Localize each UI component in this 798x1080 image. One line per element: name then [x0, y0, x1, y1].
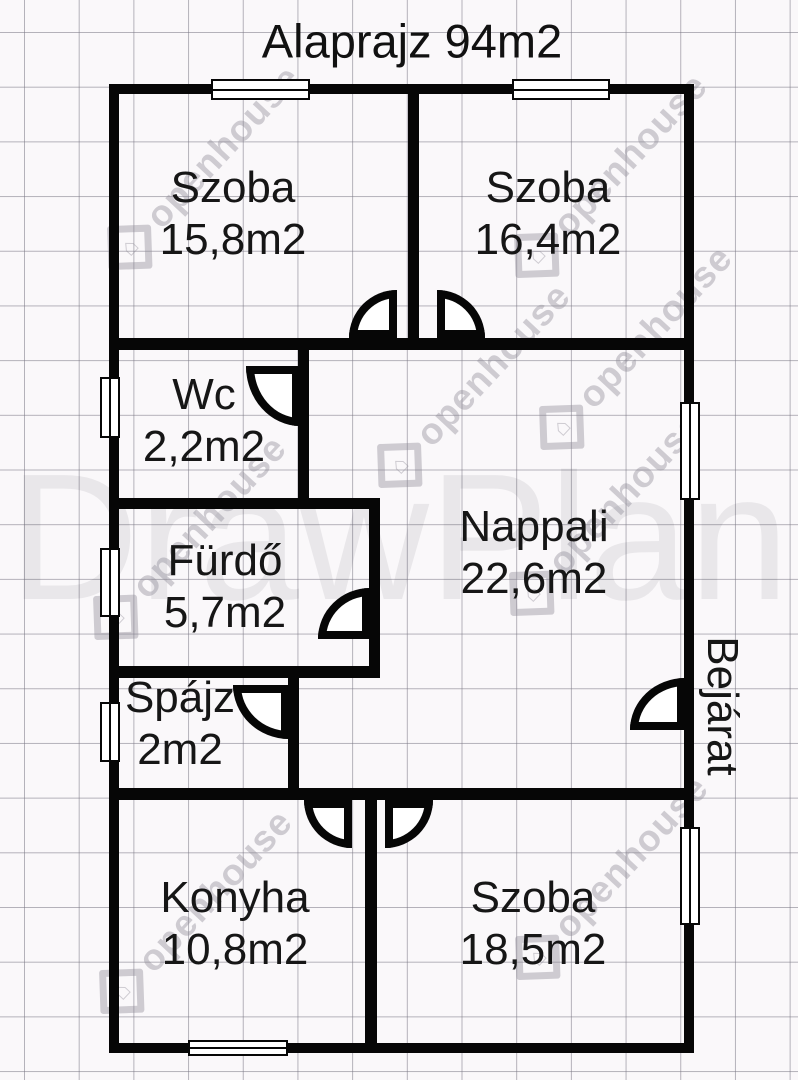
door-kitchen — [304, 800, 352, 848]
window-pane-line — [689, 404, 691, 498]
floor-plan: DrawPlan openhouse openhouse openhouse o… — [0, 0, 798, 1080]
window-bedroom-3 — [680, 827, 700, 925]
wall-bathroom-top — [109, 498, 380, 509]
window-living-room — [680, 402, 700, 500]
room-name: Szoba — [160, 162, 307, 214]
window-pane-line — [109, 704, 111, 760]
window-pane-line — [190, 1047, 286, 1049]
room-label-bathroom: Fürdő 5,7m2 — [164, 535, 286, 639]
window-pane-line — [213, 89, 308, 91]
wall-lower-divider — [109, 788, 694, 800]
room-area: 18,5m2 — [460, 924, 607, 976]
plan-title: Alaprajz 94m2 — [262, 14, 562, 69]
door-pantry — [233, 685, 289, 739]
door-bedroom-2 — [437, 290, 485, 338]
openhouse-logo-icon — [99, 969, 145, 1015]
wall-bathroom-right — [369, 498, 380, 678]
room-label-bedroom-2: Szoba 16,4m2 — [475, 162, 622, 266]
openhouse-logo-icon — [539, 405, 585, 451]
wall-between-top-bedrooms — [408, 94, 419, 338]
window-kitchen — [188, 1040, 288, 1056]
room-area: 2,2m2 — [143, 421, 265, 473]
room-name: Fürdő — [164, 535, 286, 587]
wall-upper-divider — [109, 338, 694, 350]
room-name: Wc — [143, 369, 265, 421]
window-pane-line — [109, 550, 111, 615]
room-label-bedroom-1: Szoba 15,8m2 — [160, 162, 307, 266]
wall-between-kitchen-bedroom — [365, 800, 377, 1043]
window-bathroom — [100, 548, 120, 617]
wall-pantry-right — [288, 678, 299, 788]
openhouse-watermark: openhouse — [523, 239, 740, 465]
room-label-bedroom-3: Szoba 18,5m2 — [460, 872, 607, 976]
window-pantry — [100, 702, 120, 762]
room-area: 22,6m2 — [459, 553, 608, 605]
room-label-living-room: Nappali 22,6m2 — [459, 501, 608, 605]
window-pane-line — [109, 379, 111, 436]
room-name: Konyha — [160, 872, 309, 924]
window-bedroom-2 — [512, 79, 610, 100]
entrance-label: Bejárat — [697, 636, 747, 775]
room-label-kitchen: Konyha 10,8m2 — [160, 872, 309, 976]
window-pane-line — [689, 829, 691, 923]
window-bedroom-1 — [211, 79, 310, 100]
window-pane-line — [514, 89, 608, 91]
door-bathroom — [318, 588, 370, 639]
door-bedroom-1 — [349, 290, 397, 338]
room-name: Szoba — [475, 162, 622, 214]
room-label-wc: Wc 2,2m2 — [143, 369, 265, 473]
room-area: 2m2 — [125, 724, 235, 776]
room-label-pantry: Spájz 2m2 — [125, 672, 235, 776]
room-area: 10,8m2 — [160, 924, 309, 976]
room-name: Szoba — [460, 872, 607, 924]
room-name: Nappali — [459, 501, 608, 553]
window-wc — [100, 377, 120, 438]
room-area: 5,7m2 — [164, 587, 286, 639]
room-name: Spájz — [125, 672, 235, 724]
openhouse-logo-icon — [377, 443, 423, 489]
room-area: 16,4m2 — [475, 214, 622, 266]
door-entrance — [630, 678, 685, 730]
door-bedroom-3 — [385, 800, 433, 848]
room-area: 15,8m2 — [160, 214, 307, 266]
